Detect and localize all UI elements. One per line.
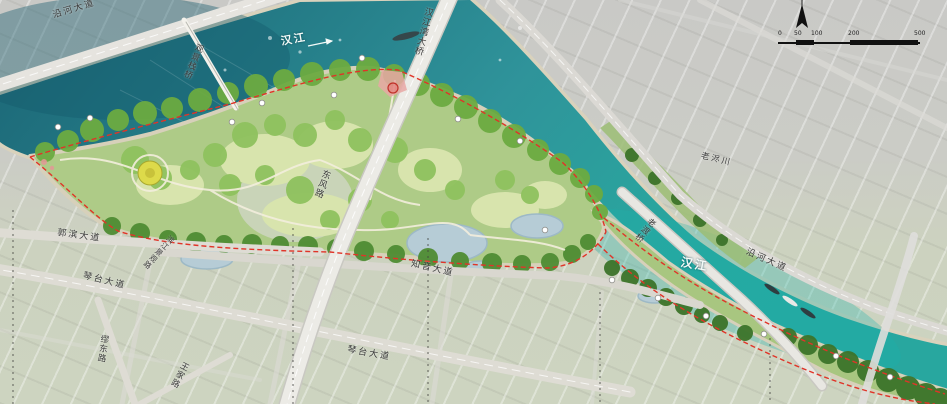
scale-tick: 100 — [811, 30, 822, 37]
north-arrow-icon — [796, 0, 808, 28]
scale-bar-segment — [796, 40, 814, 45]
yellow-garden-feature — [138, 161, 162, 185]
scale-tick: 0 — [778, 30, 782, 37]
plan-map — [0, 0, 947, 404]
scale-bar: 0 50 100 200 500 — [778, 30, 930, 50]
scale-tick: 50 — [794, 30, 802, 37]
scale-tick: 200 — [848, 30, 859, 37]
master-plan-canvas: 沿河大道 汉江 观景栈桥 汉江湾大桥 东风路 老浕川 沿河大道 汉江 老渡桥 滨… — [0, 0, 947, 404]
scale-bar-segment — [850, 40, 918, 45]
scale-tick: 500 — [914, 30, 925, 37]
